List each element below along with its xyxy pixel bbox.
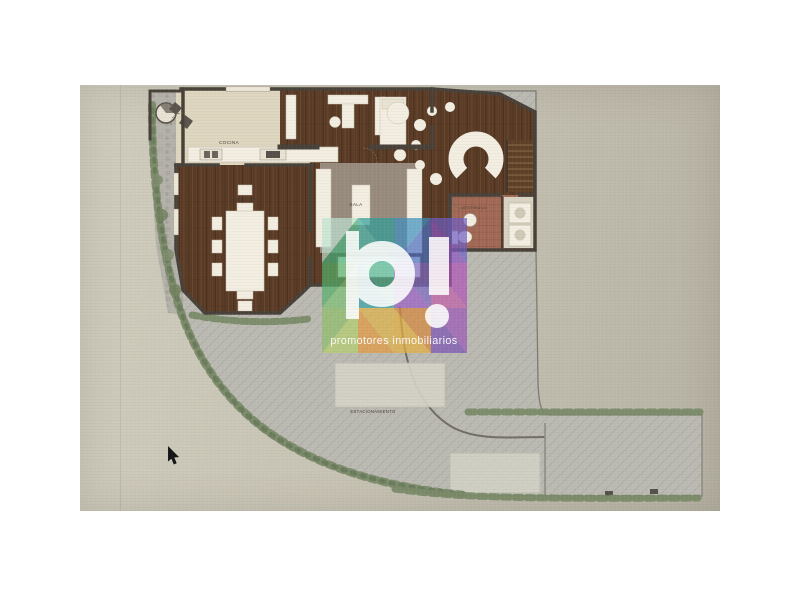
side-table — [394, 149, 406, 161]
bar-stool — [445, 102, 455, 112]
watermark-letters-text: pi — [0, 0, 1, 1]
watermark-logo: promotores inmobiliarios — [322, 218, 467, 353]
logo-letter-i-bar — [429, 237, 449, 295]
staircase — [507, 140, 533, 192]
dining-label: COMEDOR — [231, 197, 258, 202]
round-table — [387, 102, 409, 124]
dining-chair — [238, 185, 252, 195]
mouse-cursor — [168, 446, 179, 465]
screen-photo: ESTACIONAMIENTO — [80, 85, 720, 511]
bush — [156, 209, 168, 221]
kitchen-label: COCINA — [219, 140, 240, 145]
parking-spot — [335, 363, 445, 407]
shelf — [286, 95, 296, 139]
vestibule-label: VESTIBULO — [461, 205, 487, 210]
living-label: SALA — [349, 202, 363, 207]
bush — [169, 284, 181, 296]
dining-chair — [268, 240, 278, 253]
dining-chair — [268, 263, 278, 276]
bar-stool — [430, 173, 442, 185]
gate-post — [650, 489, 658, 494]
parking-label: ESTACIONAMIENTO — [350, 409, 396, 414]
dining-chair — [212, 217, 222, 230]
bar-stool — [415, 160, 425, 170]
floor-plan-svg: ESTACIONAMIENTO — [80, 85, 720, 511]
dining-chair — [212, 240, 222, 253]
bush — [162, 249, 174, 261]
logo-letter-i-dot — [425, 304, 449, 328]
parking-spot — [450, 453, 540, 493]
window — [174, 209, 179, 235]
dining-chair — [268, 217, 278, 230]
page: pi — [0, 0, 800, 600]
bush — [153, 175, 163, 185]
logo-tagline: promotores inmobiliarios — [330, 335, 457, 347]
window — [226, 87, 270, 92]
window — [174, 173, 179, 195]
dining-chair — [212, 263, 222, 276]
dining-chair — [238, 301, 252, 311]
bar-stool — [414, 119, 426, 131]
desk-chair — [330, 117, 341, 128]
